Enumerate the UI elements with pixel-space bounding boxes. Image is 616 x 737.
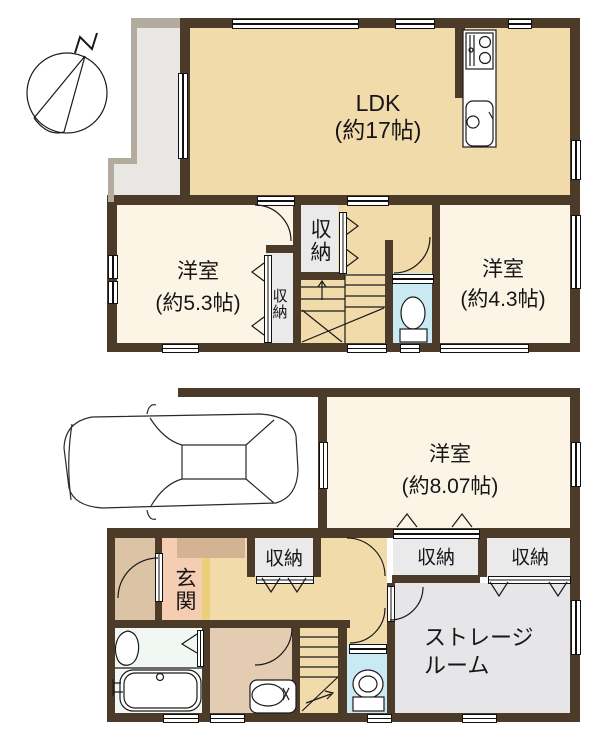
storage-room-line2: ルーム — [424, 652, 534, 680]
closet-1f-hall-label: 収納 — [265, 544, 303, 571]
car-icon — [64, 405, 298, 520]
room-size: (約17帖) — [335, 117, 422, 144]
bath-basin — [115, 631, 138, 665]
kitchen-counter — [463, 30, 496, 147]
stairs-up-arrow — [318, 281, 326, 300]
room-name: 洋室 — [460, 255, 545, 285]
stairs-2f — [301, 275, 385, 343]
stairs-1f — [300, 637, 338, 711]
room-4-3-label: 洋室 (約4.3帖) — [460, 255, 545, 315]
toilet-2f-fixture — [400, 297, 427, 342]
room-size: (約8.07帖) — [402, 471, 499, 503]
room-8-07-label: 洋室 (約8.07帖) — [402, 439, 499, 503]
storage-room-label: ストレージ ルーム — [424, 624, 534, 680]
washroom-sink — [250, 680, 296, 713]
stairs-arrow — [306, 691, 333, 703]
closet-b-label: 収納 — [511, 543, 549, 570]
room-5-3-label: 洋室 (約5.3帖) — [155, 256, 240, 320]
compass-icon — [27, 33, 107, 133]
closet-a-label: 収納 — [417, 543, 455, 570]
floor-plan: LDK (約17帖) 洋室 (約5.3帖) 洋室 (約4.3帖) 収納 収納 洋… — [0, 0, 616, 737]
bathtub-fixture — [113, 668, 202, 711]
closet-2f-hall-label: 収納 — [304, 218, 334, 264]
entrance-label: 玄関 — [169, 567, 199, 613]
room-size: (約5.3帖) — [155, 288, 240, 320]
closet-2f-room-label: 収納 — [269, 288, 290, 320]
ldk-label: LDK (約17帖) — [335, 90, 422, 144]
room-name: LDK — [335, 90, 422, 117]
storage-room-line1: ストレージ — [424, 624, 534, 652]
room-size: (約4.3帖) — [460, 285, 545, 315]
toilet-1f-fixture — [353, 670, 384, 711]
room-name: 洋室 — [155, 256, 240, 288]
room-name: 洋室 — [402, 439, 499, 471]
